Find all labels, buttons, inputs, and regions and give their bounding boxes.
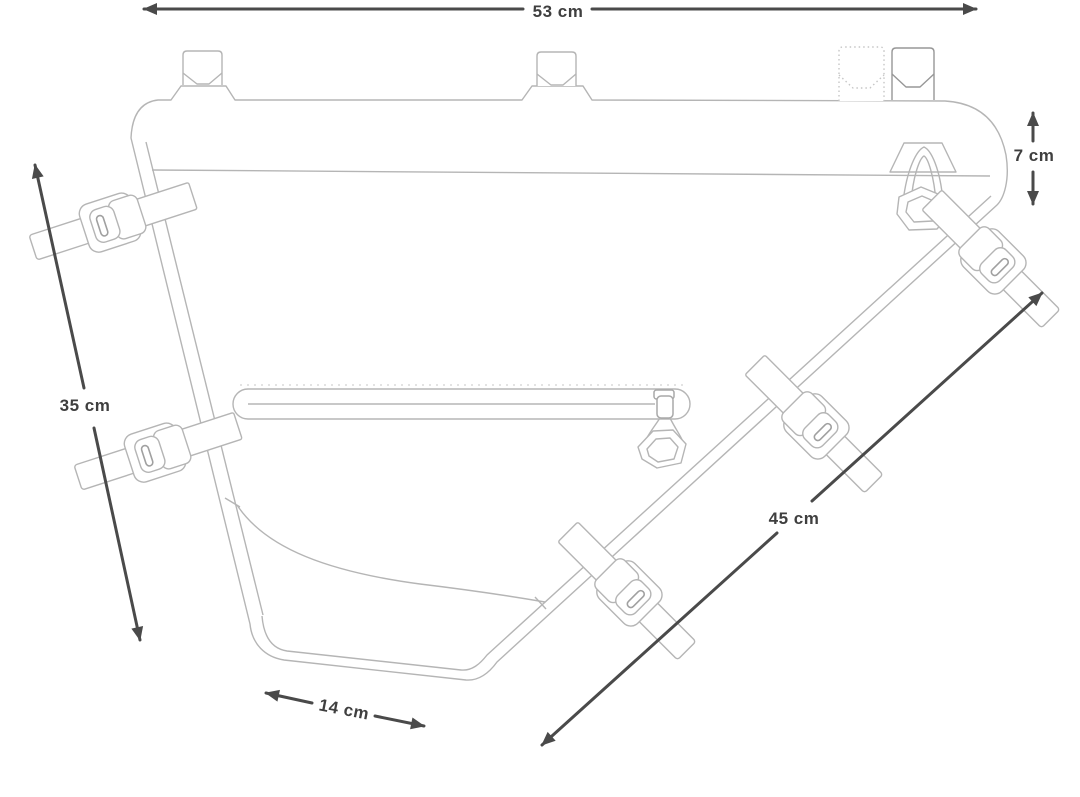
frame-bag-diagram: 53 cm 7 cm 35 cm 45 cm 14 cm [0,0,1080,797]
top-strap-tab-3-optional [839,47,884,101]
dimension-label-top-width: 53 cm [533,2,584,22]
top-strap-tab-1 [183,51,222,85]
frame-bag-outline [131,86,1007,680]
zipper-slider [654,390,674,418]
line-art-canvas [0,0,1080,797]
dimension-label-front-height: 35 cm [60,396,111,416]
top-strap-tab-4 [892,48,934,100]
dimension-label-rear-height: 7 cm [1014,146,1055,166]
dimension-label-hypotenuse: 45 cm [769,509,820,529]
top-strap-tab-2 [537,52,576,86]
